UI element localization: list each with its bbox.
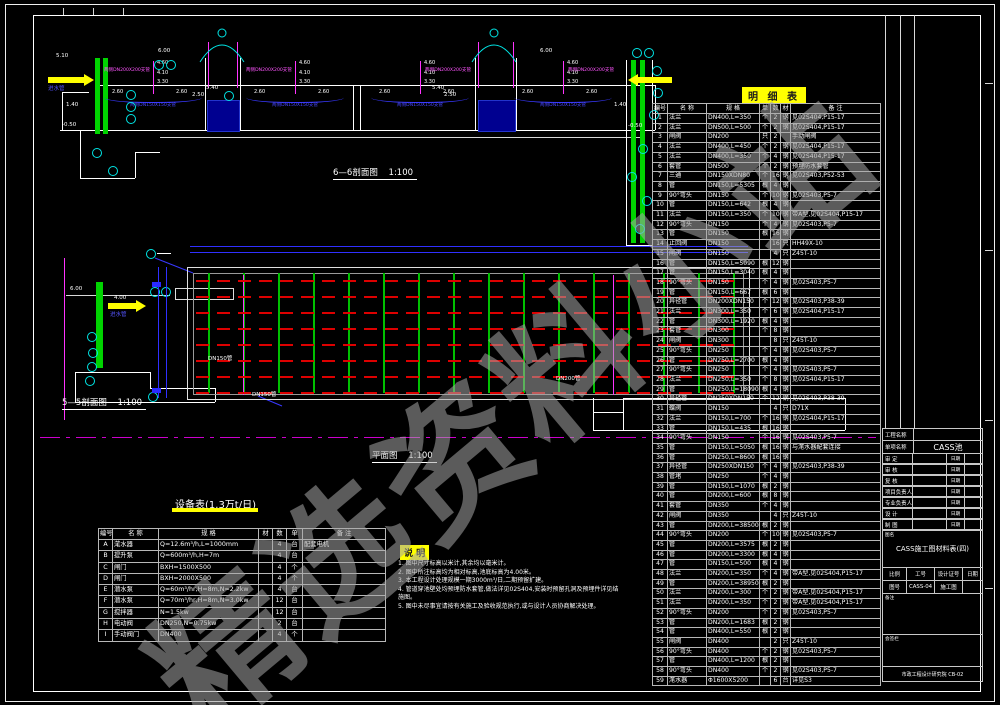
bom-table: 编号 名 称 规 格 单 数 材 备 注 1 法兰 DN400,L=350 个 … <box>652 103 881 686</box>
bom-header: 数 <box>771 104 781 114</box>
bom-cell-no: 20 <box>653 298 668 308</box>
bom-cell-mat: 只 <box>781 240 791 250</box>
bom-cell-no: 52 <box>653 608 668 618</box>
bom-cell-no: 5 <box>653 152 668 162</box>
bom-row: 38 管堵 DN250 个 4 钢 <box>653 473 881 483</box>
titleblock-jobno-label: 工号 <box>906 567 935 581</box>
bom-cell-no: 34 <box>653 434 668 444</box>
titleblock-company-strip: 市政工程设计研究院 CB-02 <box>882 666 983 682</box>
bom-cell-qty: 16 <box>771 453 781 463</box>
titleblock-sign-row: 制 图 日期 <box>882 519 983 530</box>
eq-cell-no: E <box>99 585 113 596</box>
bom-cell-mat: 钢 <box>781 143 791 153</box>
bom-cell-qty: 4 <box>771 152 781 162</box>
plan-lateral-pipe <box>593 273 595 393</box>
bom-cell-mat: 钢 <box>781 269 791 279</box>
bom-cell-no: 24 <box>653 337 668 347</box>
bom-cell-mat: 钢 <box>781 201 791 211</box>
eq-cell-no: B <box>99 551 113 562</box>
sign-row-date <box>964 508 983 519</box>
equipment-row: E 潜水泵 Q=60m³/hr,H=8m,N=2.2kw 4 台 <box>99 585 386 596</box>
note-item: 4. 管道穿池壁处均预埋防水套管,做法详见02S404,安装时预留孔洞及预埋件详… <box>398 586 620 603</box>
bom-cell-mat: 钢 <box>781 366 791 376</box>
bom-cell-mat: 钢 <box>781 414 791 424</box>
bom-cell-mat: 钢 <box>781 570 791 580</box>
bom-cell-spec: DN150,L=500 <box>707 560 760 570</box>
eq-header: 规 格 <box>159 529 259 540</box>
bom-cell-no: 37 <box>653 463 668 473</box>
dwgname-label: 图名 <box>885 532 894 538</box>
bom-cell-qty: 6 <box>771 308 781 318</box>
bom-cell-name: 闸阀 <box>668 337 707 347</box>
bom-cell-no: 26 <box>653 356 668 366</box>
eq-cell-mat <box>259 562 273 573</box>
bom-cell-name: 90°弯头 <box>668 278 707 288</box>
bom-cell-name: 管 <box>668 230 707 240</box>
eq-cell-unit: 个 <box>287 630 303 641</box>
plan-lateral-pipe <box>278 273 280 393</box>
titleblock-sign-rows: 审 定 日期 审 核 日期 复 核 日期 项目负责人 <box>882 453 983 530</box>
bom-cell-mat: 钢 <box>781 560 791 570</box>
bom-cell-spec: DN400 <box>707 667 760 677</box>
bom-cell-name: 90°弯头 <box>668 608 707 618</box>
eq-cell-note <box>303 562 386 573</box>
eq-header: 数 <box>273 529 287 540</box>
bom-cell-unit: 个 <box>760 502 771 512</box>
bom-cell-unit: 根 <box>760 181 771 191</box>
elevation-label: 6.00 <box>70 286 82 292</box>
bom-cell-spec: DN200 <box>707 133 760 143</box>
titleblock-dwgname-box: 图名 CASS施工图材料表(四) <box>882 530 983 568</box>
bom-cell-no: 39 <box>653 482 668 492</box>
bom-cell-mat: 钢 <box>781 346 791 356</box>
notes-list: 1. 图中尺寸标高以米计,其余均以毫米计。2. 图中所注标高均为相对标高,池底标… <box>398 560 620 611</box>
bom-cell-note: 见02S403,P38-39 <box>791 395 881 405</box>
plan-lateral-pipe <box>313 273 315 393</box>
bom-cell-note <box>791 492 881 502</box>
bom-cell-name: 管 <box>668 579 707 589</box>
bom-row: 29 管 DN250,L=18090 根 4 钢 <box>653 385 881 395</box>
bom-cell-no: 23 <box>653 327 668 337</box>
eq-cell-unit: 台 <box>287 596 303 607</box>
eq-cell-name: 手动阀门 <box>113 630 159 641</box>
bom-cell-note: 带A型,见02S404,P15-17 <box>791 589 881 599</box>
bom-cell-mat: 钢 <box>781 278 791 288</box>
bom-cell-name: 法兰 <box>668 570 707 580</box>
detail-bubble <box>87 332 97 342</box>
bom-cell-name: 异径管 <box>668 463 707 473</box>
equipment-row: H 电动阀 DN250,N=0.75kw 2 台 <box>99 619 386 630</box>
bom-cell-spec: DN250XDN150 <box>707 463 760 473</box>
bom-cell-name: 异径管 <box>668 395 707 405</box>
bom-cell-no: 16 <box>653 259 668 269</box>
bom-cell-note <box>791 201 881 211</box>
bom-cell-unit: 根 <box>760 560 771 570</box>
bom-cell-mat: 钢 <box>781 288 791 298</box>
sign-row-mid: 日期 <box>946 497 965 508</box>
bom-cell-qty: 4 <box>771 346 781 356</box>
bom-cell-qty: 12 <box>771 259 781 269</box>
bom-cell-no: 56 <box>653 647 668 657</box>
bom-cell-mat: 钢 <box>781 657 791 667</box>
bom-cell-no: 41 <box>653 502 668 512</box>
bom-cell-spec: Φ1600X5200 <box>707 676 760 686</box>
bom-cell-name: 法兰 <box>668 152 707 162</box>
bom-cell-unit: 根 <box>760 521 771 531</box>
bom-cell-unit: 根 <box>760 618 771 628</box>
titleblock-sign-row: 审 核 日期 <box>882 464 983 475</box>
elevation-label: 2.50 <box>444 92 456 98</box>
bom-cell-no: 12 <box>653 220 668 230</box>
bom-cell-name: 套管 <box>668 502 707 512</box>
bom-cell-note: HH49X-10 <box>791 240 881 250</box>
detail-bubble <box>126 114 136 124</box>
titleblock-remark-box: 备注 <box>882 593 983 635</box>
plan-pipe-label: DN200管 <box>556 376 580 382</box>
bom-cell-qty: 2 <box>771 589 781 599</box>
bom-cell-unit: 个 <box>760 220 771 230</box>
note-item: 3. 本工程设计处理规模一期3000m³/日,二期预留扩建。 <box>398 577 620 586</box>
bom-cell-note <box>791 579 881 589</box>
bom-cell-name: 套管 <box>668 327 707 337</box>
bom-cell-qty: 2 <box>771 608 781 618</box>
titleblock-item-label: 单项名称 <box>882 440 914 454</box>
detail-bubble <box>627 172 637 182</box>
bom-cell-mat: 只 <box>781 511 791 521</box>
bom-cell-mat: 钢 <box>781 579 791 589</box>
eq-cell-unit: 台 <box>287 540 303 551</box>
bom-cell-name: 90°弯头 <box>668 366 707 376</box>
bom-cell-note <box>791 482 881 492</box>
bom-cell-mat: 钢 <box>781 463 791 473</box>
bom-cell-note: 预埋防水套管 <box>791 162 881 172</box>
bom-cell-note <box>791 628 881 638</box>
bom-cell-unit: 只 <box>760 133 771 143</box>
bom-cell-note <box>791 259 881 269</box>
bom-cell-name: 管 <box>668 540 707 550</box>
bom-cell-no: 33 <box>653 424 668 434</box>
bom-cell-note <box>791 657 881 667</box>
bom-cell-note <box>791 453 881 463</box>
eq-header: 单 <box>287 529 303 540</box>
plan-lateral-pipe <box>488 273 490 393</box>
bom-cell-name: 管 <box>668 201 707 211</box>
plan-lateral-pipe <box>208 273 210 393</box>
bom-cell-note: 见02S403,P5-7 <box>791 608 881 618</box>
detail-bubble <box>632 48 642 58</box>
equipment-table-title-underline <box>172 508 258 512</box>
bom-cell-name: 管 <box>668 657 707 667</box>
bom-cell-no: 9 <box>653 191 668 201</box>
bom-cell-spec: DN250 <box>707 346 760 356</box>
bom-cell-no: 48 <box>653 570 668 580</box>
eq-cell-name: 滗水器 <box>113 540 159 551</box>
detail-bubble <box>154 60 164 70</box>
bom-cell-unit: 根 <box>760 657 771 667</box>
bom-cell-note: 见02S403,P5-7 <box>791 434 881 444</box>
equipment-row: I 手动阀门 DN400 4 个 <box>99 630 386 641</box>
bom-row: 48 法兰 DN200,L=350 个 4 钢 带A型,见02S404,P15-… <box>653 570 881 580</box>
bom-row: 17 管 DN150,L=3040 根 4 钢 <box>653 269 881 279</box>
eq-cell-spec: DN400 <box>159 630 259 641</box>
bom-cell-unit: 个 <box>760 327 771 337</box>
sign-row-date <box>964 475 983 486</box>
bom-cell-qty: 2 <box>771 521 781 531</box>
bom-cell-note: 见02S403,P5-7 <box>791 667 881 677</box>
detail-bubble <box>146 249 156 259</box>
cluster-elevations: 4.604.103.30 <box>424 59 435 88</box>
eq-cell-qty: 4 <box>273 573 287 584</box>
bom-cell-name: 法兰 <box>668 375 707 385</box>
bom-cell-unit: 个 <box>760 375 771 385</box>
bom-cell-spec: DN150 <box>707 220 760 230</box>
eq-cell-note <box>303 551 386 562</box>
bom-cell-qty: 8 <box>771 337 781 347</box>
eq-cell-note: 配套电机 <box>303 540 386 551</box>
eq-cell-mat <box>259 596 273 607</box>
bom-cell-mat: 钢 <box>781 599 791 609</box>
bom-cell-name: 管 <box>668 443 707 453</box>
bom-cell-spec: DN150 <box>707 191 760 201</box>
bom-cell-spec: DN300 <box>707 327 760 337</box>
bom-cell-qty: 16 <box>771 172 781 182</box>
bom-header: 单 <box>760 104 771 114</box>
bom-cell-unit <box>760 249 771 259</box>
bom-cell-note: 见02S404,P15-17 <box>791 152 881 162</box>
bom-cell-no: 19 <box>653 288 668 298</box>
bom-cell-note: 见02S404,P15-17 <box>791 143 881 153</box>
section-5-5-scale: 1:100 <box>118 398 143 408</box>
bom-row: 44 90°弯头 DN200 个 10 钢 见02S403,P5-7 <box>653 531 881 541</box>
bom-cell-note: 详见S3 <box>791 676 881 686</box>
eq-cell-note <box>303 585 386 596</box>
detail-bubble <box>126 102 136 112</box>
bom-cell-qty: 2 <box>771 579 781 589</box>
bom-cell-no: 35 <box>653 443 668 453</box>
bom-cell-qty: 2 <box>771 599 781 609</box>
bom-row: 43 管 DN200,L=38500 根 2 钢 <box>653 521 881 531</box>
bom-cell-unit: 个 <box>760 599 771 609</box>
eq-cell-unit: 个 <box>287 573 303 584</box>
dimension-cluster: 4.604.103.30 两侧DN200X200支管 2.60 2.60 两侧D… <box>508 58 618 112</box>
bom-cell-mat: 钢 <box>781 114 791 124</box>
elevation-label: 1.40 <box>66 102 78 108</box>
bom-row: 46 管 DN200,L=3300 根 4 钢 <box>653 550 881 560</box>
bom-row: 45 管 DN200,L=3575 根 2 钢 <box>653 540 881 550</box>
bom-cell-spec: DN500,L=500 <box>707 123 760 133</box>
bom-cell-name: 管 <box>668 288 707 298</box>
plan-dim-marker <box>152 388 161 393</box>
bom-cell-qty: 4 <box>771 220 781 230</box>
bom-cell-no: 55 <box>653 637 668 647</box>
bom-cell-name: 法兰 <box>668 308 707 318</box>
plan-lateral-pipe <box>418 273 420 393</box>
bom-cell-unit: 个 <box>760 298 771 308</box>
bom-cell-mat: 钢 <box>781 618 791 628</box>
eq-cell-unit: 台 <box>287 607 303 618</box>
dimension-cluster: 4.604.103.30 两侧DN200X200支管 2.60 2.60 两侧D… <box>240 58 350 112</box>
bom-row: 47 管 DN150,L=500 根 4 钢 <box>653 560 881 570</box>
eq-cell-spec: Q=12.6m³/h,L=1000mm <box>159 540 259 551</box>
equipment-row: B 提升泵 Q=600m³/h,H=7m 4 台 <box>99 551 386 562</box>
bom-cell-qty: 4 <box>771 473 781 483</box>
eq-cell-unit: 个 <box>287 562 303 573</box>
elevation-label: 6.00 <box>540 48 552 54</box>
bom-cell-qty: 2 <box>771 133 781 143</box>
bom-cell-unit: 个 <box>760 414 771 424</box>
remark-box-label: 备注 <box>885 595 894 601</box>
cluster-centerline <box>295 61 296 94</box>
bom-cell-unit: 根 <box>760 424 771 434</box>
bom-cell-note <box>791 288 881 298</box>
eq-cell-spec: BXH=1500X500 <box>159 562 259 573</box>
eq-cell-mat <box>259 585 273 596</box>
bom-cell-mat: 钢 <box>781 123 791 133</box>
bom-cell-note: 见02S404,P15-17 <box>791 114 881 124</box>
bom-cell-unit: 根 <box>760 492 771 502</box>
bom-cell-note <box>791 540 881 550</box>
bom-cell-spec: DN150 <box>707 278 760 288</box>
bom-cell-spec: DN400,L=1200 <box>707 657 760 667</box>
equipment-table: 编号 名 称 规 格 材 数 单 备 注 A 滗水器 Q=12.6m³/h,L=… <box>98 528 386 642</box>
bom-cell-mat: 钢 <box>781 162 791 172</box>
detail-bubble <box>644 48 654 58</box>
bom-cell-note: Z45T-10 <box>791 249 881 259</box>
titleblock-sign-row: 审 定 日期 <box>882 453 983 464</box>
bom-cell-no: 53 <box>653 618 668 628</box>
bom-cell-unit: 个 <box>760 434 771 444</box>
equipment-row: A 滗水器 Q=12.6m³/h,L=1000mm 4 台 配套电机 <box>99 540 386 551</box>
sign-row-mid: 日期 <box>946 464 965 475</box>
eq-cell-spec: Q=70m³/hr,H=8m,N=3.0kw <box>159 596 259 607</box>
bom-cell-unit: 个 <box>760 570 771 580</box>
bom-cell-name: 管 <box>668 550 707 560</box>
bom-cell-no: 17 <box>653 269 668 279</box>
note-item: 2. 图中所注标高均为相对标高,池底标高为4.00米。 <box>398 569 620 578</box>
bom-row: 59 滗水器 Φ1600X5200 6 台 详见S3 <box>653 676 881 686</box>
bom-cell-name: 管 <box>668 521 707 531</box>
bom-row: 23 套管 DN300 个 8 钢 <box>653 327 881 337</box>
bom-cell-spec: DN350 <box>707 511 760 521</box>
eq-cell-unit: 台 <box>287 585 303 596</box>
bom-row: 57 管 DN400,L=1200 根 2 钢 <box>653 657 881 667</box>
sign-row-mid: 日期 <box>946 508 965 519</box>
bom-cell-note: 见02S403,P5-7 <box>791 647 881 657</box>
detail-bubble <box>638 144 648 154</box>
bom-cell-qty: 10 <box>771 531 781 541</box>
bom-cell-no: 42 <box>653 511 668 521</box>
bom-cell-spec: DN250,L=350 <box>707 375 760 385</box>
bom-cell-name: 法兰 <box>668 599 707 609</box>
titleblock-sign-box: 会签栏 <box>882 634 983 667</box>
bom-cell-mat: 钢 <box>781 181 791 191</box>
bom-cell-qty: 4 <box>771 317 781 327</box>
bom-cell-qty: 8 <box>771 327 781 337</box>
sign-row-name <box>912 497 947 508</box>
bom-cell-spec: DN350 <box>707 502 760 512</box>
bom-cell-note: 见02S403,P5-7 <box>791 346 881 356</box>
eq-cell-no: H <box>99 619 113 630</box>
bom-table-title: 明 细 表 <box>742 87 806 104</box>
eq-cell-no: D <box>99 573 113 584</box>
sign-row-name <box>912 486 947 497</box>
detail-bubble <box>166 60 176 70</box>
bom-cell-unit: 个 <box>760 278 771 288</box>
detail-bubble <box>652 66 662 76</box>
bom-row: 27 90°弯头 DN250 个 4 钢 见02S403,P5-7 <box>653 366 881 376</box>
section-6-6-title: 6—6剖面图 1:100 <box>333 166 417 180</box>
bom-cell-note <box>791 385 881 395</box>
bom-cell-note <box>791 618 881 628</box>
bom-cell-unit: 根 <box>760 356 771 366</box>
bom-cell-no: 6 <box>653 162 668 172</box>
bom-cell-unit: 根 <box>760 482 771 492</box>
bom-cell-qty: 2 <box>771 637 781 647</box>
elevation-label: -0.50 <box>628 123 642 129</box>
bom-cell-mat: 钢 <box>781 220 791 230</box>
bom-cell-qty: 16 <box>771 424 781 434</box>
bom-cell-qty: 4 <box>771 405 781 415</box>
bom-cell-qty: 2 <box>771 647 781 657</box>
cluster-centerline <box>420 61 421 94</box>
sign-row-date <box>964 486 983 497</box>
eq-header: 备 注 <box>303 529 386 540</box>
section-5-5-title: 5—5剖面图 1:100 <box>62 396 146 410</box>
bom-cell-qty: 2 <box>771 143 781 153</box>
bom-cell-spec: DN400,L=450 <box>707 143 760 153</box>
elevation-label: 6.00 <box>158 48 170 54</box>
bom-cell-qty: 4 <box>771 550 781 560</box>
detail-bubble <box>88 348 98 358</box>
titleblock-cert-label: 设计证号 <box>934 567 963 581</box>
bom-cell-mat: 钢 <box>781 540 791 550</box>
bom-cell-name: 闸阀 <box>668 511 707 521</box>
detail-bubble <box>224 91 234 101</box>
bom-cell-name: 管 <box>668 453 707 463</box>
bom-row: 6 套管 DN500 个 2 钢 预埋防水套管 <box>653 162 881 172</box>
bom-cell-note: D71X <box>791 405 881 415</box>
bom-cell-qty: 4 <box>771 560 781 570</box>
titleblock-sign-row: 复 核 日期 <box>882 475 983 486</box>
bom-cell-spec: DN200,L=38950 <box>707 579 760 589</box>
bom-cell-note <box>791 181 881 191</box>
bom-cell-mat: 钢 <box>781 482 791 492</box>
bom-cell-mat: 钢 <box>781 424 791 434</box>
sign-row-date <box>964 464 983 475</box>
eq-cell-unit: 台 <box>287 619 303 630</box>
section-6-6-scale: 1:100 <box>389 168 414 178</box>
bom-cell-mat: 钢 <box>781 453 791 463</box>
bom-row: 42 闸阀 DN350 4 只 Z45T-10 <box>653 511 881 521</box>
cluster-side-label: 两侧DN200X200支管 <box>425 67 481 73</box>
bom-row: 9 90°弯头 DN150 个 10 钢 见02S403,P5-7 <box>653 191 881 201</box>
bom-cell-qty: 4 <box>771 249 781 259</box>
detail-bubble <box>126 90 136 100</box>
bom-cell-unit: 个 <box>760 473 771 483</box>
eq-cell-mat <box>259 619 273 630</box>
cluster-pipe-label: 两侧DN150X150支管 <box>98 102 208 108</box>
sign-row-label: 制 图 <box>882 519 913 530</box>
eq-cell-mat <box>259 540 273 551</box>
bom-cell-unit: 个 <box>760 366 771 376</box>
titleblock-item-value: CASS池 <box>913 440 983 454</box>
bom-cell-qty: 2 <box>771 540 781 550</box>
detail-bubble <box>148 392 158 402</box>
eq-cell-spec: N=1.5kw <box>159 607 259 618</box>
bom-cell-spec: DN300 <box>707 337 760 347</box>
bom-row: 32 法兰 DN150,L=700 个 16 钢 见02S404,P15-17 <box>653 414 881 424</box>
eq-cell-mat <box>259 573 273 584</box>
